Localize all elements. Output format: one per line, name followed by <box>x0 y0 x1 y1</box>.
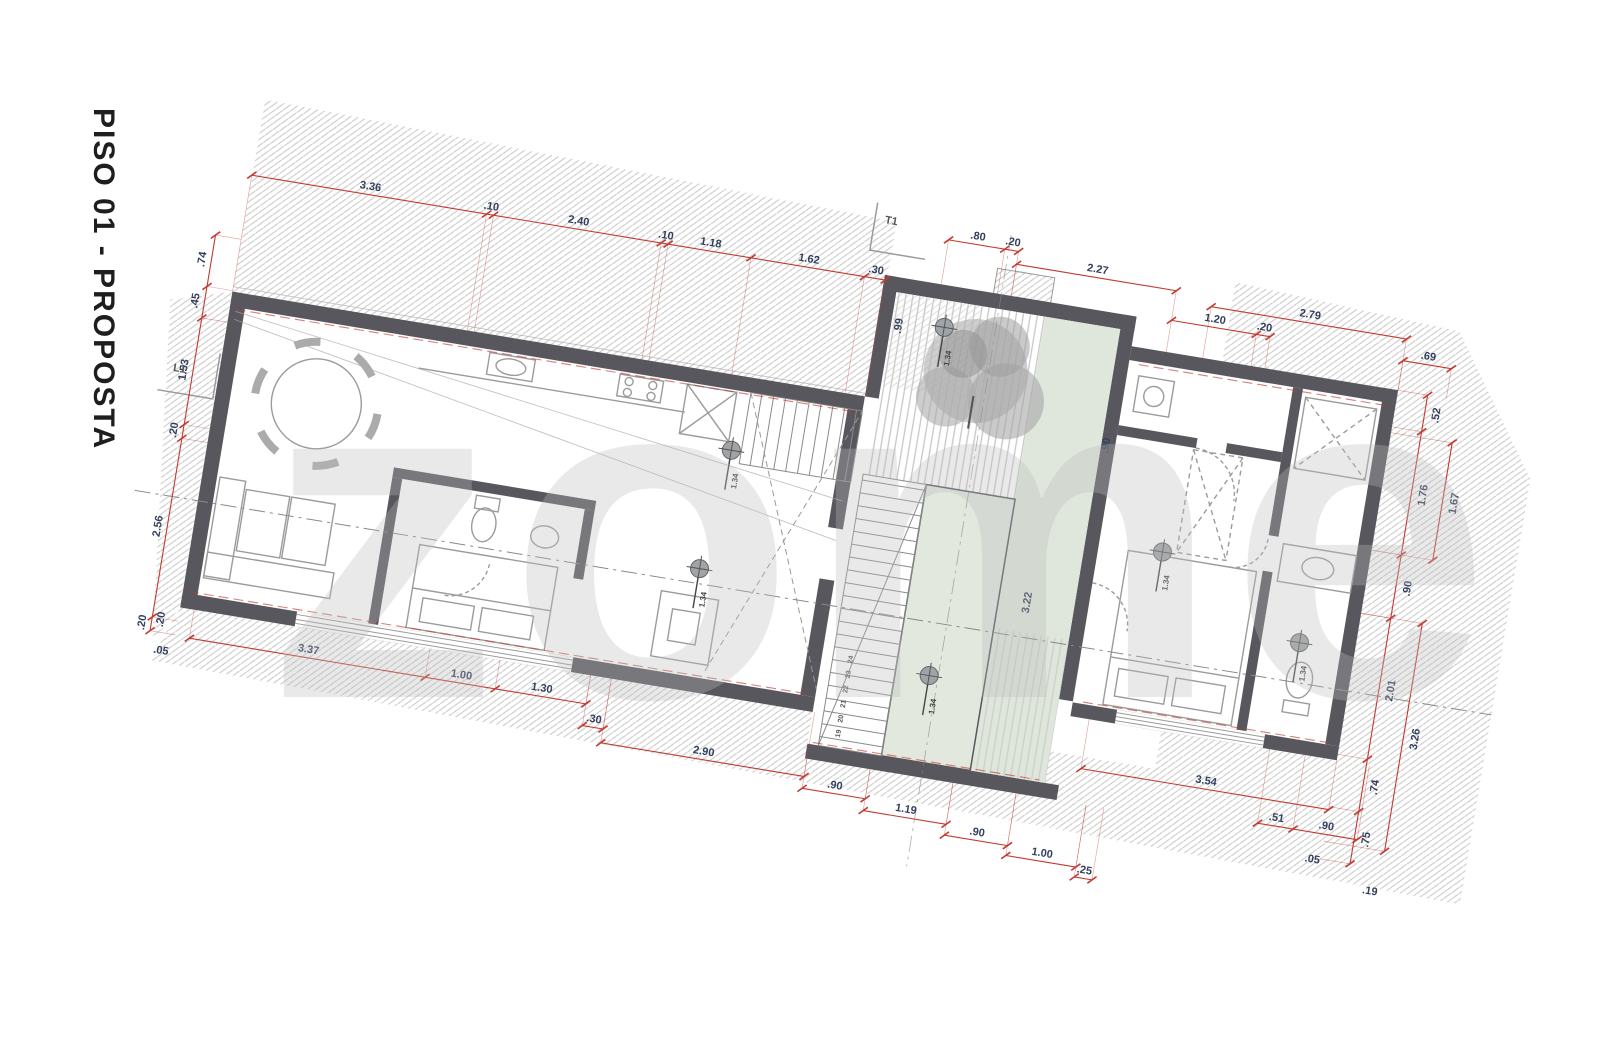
dimension-label: .51 <box>1268 811 1285 825</box>
dimension-label: .20 <box>1005 235 1022 249</box>
dimension-line <box>216 235 242 239</box>
dimension-label: .90 <box>1099 437 1113 454</box>
dimension-label: 21 <box>840 699 848 708</box>
blueprint-canvas: PISO 01 - PROPOSTA <box>0 0 1600 1062</box>
dimension-label: .74 <box>195 250 209 268</box>
dimension-label: .10 <box>483 200 500 214</box>
dimension-label: 1.00 <box>1031 846 1054 861</box>
dimension-label: 22 <box>842 685 850 694</box>
dimension-label: .30 <box>585 712 602 726</box>
dimension-label: .52 <box>1429 407 1443 424</box>
dimension-label: .90 <box>1401 580 1415 597</box>
dimension-label: .90 <box>1318 819 1335 833</box>
dimension-label: .10 <box>657 228 674 242</box>
dimension-label: .75 <box>1359 831 1373 848</box>
section-marker-l1: L1 <box>172 362 187 376</box>
dimension-line <box>1166 320 1171 352</box>
dimension-label: .99 <box>892 317 906 334</box>
dimension-label: .90 <box>969 825 986 839</box>
dimension-label: .25 <box>1076 863 1093 877</box>
dimension-label: 19 <box>835 729 843 738</box>
dimension-label: 23 <box>845 670 853 679</box>
dimension-label: .20 <box>167 421 181 438</box>
dimension-label: 1.20 <box>1204 312 1227 327</box>
floor-plan-drawing: 3.36.102.40.101.181.62.30.80.202.271.20.… <box>9 30 1580 1058</box>
dimension-label: .45 <box>188 292 202 309</box>
dimension-label: .20 <box>1256 320 1273 334</box>
dimension-line <box>941 240 948 284</box>
dimension-label: .05 <box>152 644 169 658</box>
dimension-label: 24 <box>847 655 855 664</box>
floor-plan: 3.36.102.40.101.181.62.30.80.202.271.20.… <box>9 30 1580 1058</box>
dimension-label: .05 <box>1304 852 1321 866</box>
dimension-label: .69 <box>1420 350 1437 364</box>
dimension-label: 2.27 <box>1086 262 1109 277</box>
section-marker-t1: T1 <box>884 214 899 228</box>
dimension-label: .90 <box>826 778 843 792</box>
dimension-line <box>207 286 233 290</box>
dimension-label: 1.19 <box>894 802 917 817</box>
dimension-label: .20 <box>154 611 168 628</box>
dimension-label: .30 <box>868 263 885 277</box>
dimension-label: .19 <box>1361 884 1378 898</box>
dimension-label: .80 <box>969 229 986 243</box>
dimension-label: 20 <box>837 714 845 723</box>
dimension-label: .20 <box>135 614 149 631</box>
